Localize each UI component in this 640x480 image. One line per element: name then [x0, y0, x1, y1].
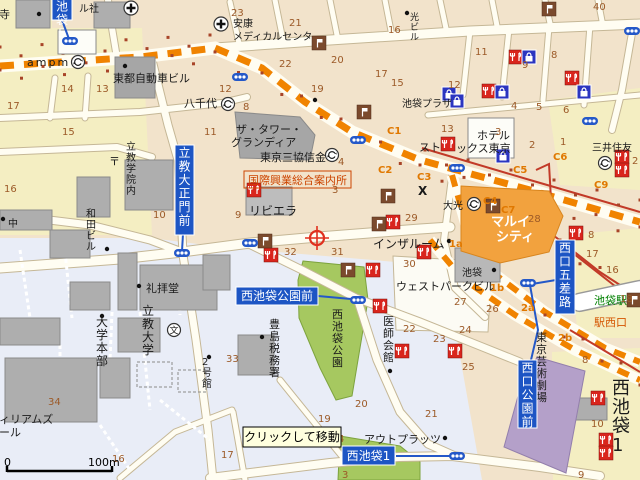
block-number: 31: [331, 247, 344, 258]
move-tooltip: クリックして移動: [243, 427, 341, 447]
boundary-dot: [41, 43, 44, 46]
block-number: 19: [311, 84, 324, 95]
bank-icon: [468, 198, 481, 211]
boundary-dot: [320, 116, 323, 119]
light-icon: [449, 452, 465, 460]
map-label: 八千代: [184, 97, 217, 110]
boundary-dot: [125, 38, 128, 41]
exit-label: 2a: [521, 303, 535, 314]
map-label: ホール: [0, 426, 21, 439]
intersection-sign: 西池袋1: [342, 446, 395, 465]
block-number: 24: [459, 325, 472, 336]
flag-icon: [381, 189, 395, 203]
boundary-dot: [0, 69, 2, 72]
block-number: 1: [560, 137, 566, 148]
block-number: 32: [284, 247, 297, 258]
map-viewport[interactable]: 文 寺ル社ampm東都自動車ビル八千代安康メディカルセンタ光ビル池袋プラザザ・タ…: [0, 0, 640, 480]
block-number: 3: [495, 127, 501, 138]
boundary-dot: [617, 229, 620, 232]
sign-text: 西池袋公園前: [241, 288, 313, 303]
block-number: 14: [61, 84, 74, 95]
block-number: 21: [425, 409, 438, 420]
restaurant-icon: [395, 344, 409, 358]
map-label: 東京芸術劇場: [536, 331, 547, 404]
exit-label: C2: [378, 165, 392, 176]
bank-icon: [599, 157, 612, 170]
restaurant-icon: [615, 163, 629, 177]
restaurant-icon: [591, 391, 605, 405]
block-number: 26: [486, 304, 499, 315]
block-number: 17: [375, 69, 388, 80]
map-label: リビエラ: [249, 204, 297, 218]
boundary-dot: [488, 174, 491, 177]
map-label: 立教大学: [142, 303, 154, 357]
boundary-dot: [579, 262, 582, 265]
light-icon: [624, 27, 640, 35]
map-label: ル社: [79, 2, 99, 15]
map-label: 中: [8, 217, 18, 230]
flag-icon: [372, 217, 386, 231]
flag-icon: [312, 36, 326, 50]
block-number: 28: [528, 214, 541, 225]
hospital-icon: [124, 1, 138, 15]
block-number: 2: [529, 140, 535, 151]
restaurant-icon: [366, 263, 380, 277]
exit-label: C9: [594, 180, 608, 191]
exit-label: 1b: [490, 283, 504, 294]
light-icon: [242, 239, 258, 247]
flag-icon: [341, 263, 355, 277]
flag-icon: [357, 105, 371, 119]
restaurant-icon: [441, 137, 455, 151]
dot-icon: [313, 98, 317, 102]
block-number: 12: [448, 80, 461, 91]
block-number: 9: [235, 210, 241, 221]
boundary-dot: [399, 162, 402, 165]
map-label: スト: [419, 141, 441, 154]
map-label: 池袋: [462, 266, 482, 279]
boundary-dot: [441, 180, 444, 183]
light-icon: [232, 73, 248, 81]
map-label: 大学本部: [96, 315, 108, 368]
map-label: アウトプラッツ: [364, 433, 441, 446]
block-number: 17: [7, 101, 20, 112]
boundary-dot: [553, 179, 556, 182]
sign-text: 西口公園前: [521, 361, 533, 429]
dot-icon: [492, 268, 496, 272]
boundary-dot: [188, 45, 191, 48]
map-label: インザルーム: [373, 237, 445, 251]
boundary-dot: [340, 118, 343, 121]
map-label: ウェストパークビル: [396, 280, 495, 293]
map-label: グランディア: [231, 135, 296, 149]
school-icon: 文: [168, 324, 181, 337]
boundary-dot: [104, 50, 107, 53]
block-number: 23: [433, 334, 446, 345]
restaurant-icon: [565, 71, 579, 85]
exit-label: C5: [513, 165, 527, 176]
intersection-sign: 西口五差路: [555, 240, 575, 314]
map-label: 寺: [0, 8, 10, 21]
boundary-dot: [601, 360, 604, 363]
svg-text:文: 文: [169, 325, 178, 337]
map-label: マルイ: [491, 215, 530, 230]
shopping-icon: [495, 85, 509, 99]
dot-icon: [105, 247, 109, 251]
map-label: ザ・タワー・: [236, 123, 302, 136]
block-number: 34: [48, 397, 61, 408]
boundary-dot: [280, 93, 283, 96]
map-label: 光ビル: [410, 11, 419, 43]
block-number: 16: [606, 265, 619, 276]
map-label: ホテル: [477, 129, 510, 142]
intersection-sign: 西口公園前: [518, 360, 537, 429]
restaurant-icon: [264, 248, 278, 262]
exit-label: C7: [501, 205, 515, 216]
bank-icon: [72, 56, 85, 69]
scale-end-label: 100m: [88, 456, 120, 469]
dot-icon: [388, 369, 392, 373]
light-icon: [520, 279, 536, 287]
light-icon: [174, 249, 190, 257]
block-number: 25: [462, 362, 475, 373]
map-label: 東京三協信金: [260, 150, 326, 164]
boundary-dot: [171, 54, 174, 57]
boundary-dot: [467, 159, 470, 162]
map-label: 池袋プラザ: [402, 97, 452, 110]
map-canvas[interactable]: 文 寺ル社ampm東都自動車ビル八千代安康メディカルセンタ光ビル池袋プラザザ・タ…: [0, 0, 640, 480]
boundary-dot: [146, 47, 149, 50]
boundary-dot: [20, 54, 23, 57]
block-number: 11: [204, 127, 217, 138]
block-number: 20: [355, 399, 368, 410]
boundary-dot: [106, 70, 109, 73]
boundary-dot: [617, 204, 620, 207]
sign-text: 西池袋1: [347, 449, 391, 463]
block-number: 10: [591, 419, 604, 430]
map-label: 大光: [443, 199, 463, 212]
map-label: ampm: [27, 56, 70, 69]
block-number: 17: [221, 450, 234, 461]
block-number: 12: [219, 84, 232, 95]
block-number: 4: [511, 101, 517, 112]
block-number: 22: [279, 59, 292, 70]
bank-icon: [326, 149, 339, 162]
map-label: シティ: [496, 230, 534, 245]
block-number: 5: [536, 102, 542, 113]
block-number: 16: [4, 184, 17, 195]
block-number: 22: [403, 324, 416, 335]
block-number: 21: [289, 18, 302, 29]
restaurant-icon: [509, 50, 523, 64]
dot-icon: [123, 64, 127, 68]
boundary-dot: [167, 36, 170, 39]
intersection-sign: 立教大正門前: [175, 145, 194, 235]
block-number: 16: [388, 25, 401, 36]
boundary-dot: [445, 164, 448, 167]
bank-icon: [222, 98, 235, 111]
dot-icon: [37, 12, 41, 16]
map-label: 東都自動車ビル: [113, 71, 190, 85]
exit-label: 2b: [558, 333, 572, 344]
block-number: 4: [338, 157, 344, 168]
boundary-dot: [63, 73, 66, 76]
block-number: 29: [405, 213, 418, 224]
block-number: 20: [331, 55, 344, 66]
block-number: 19: [318, 414, 331, 425]
boundary-dot: [300, 95, 303, 98]
block-number: 9: [578, 470, 584, 480]
exit-label: C6: [553, 152, 567, 163]
boundary-dot: [463, 176, 466, 179]
block-number: 8: [588, 230, 594, 241]
boundary-dot: [379, 141, 382, 144]
intersection-sign: 西池袋公園前: [236, 287, 318, 305]
exit-label: C1: [387, 126, 401, 137]
map-label: ックス東京: [456, 141, 511, 155]
restaurant-icon: [482, 84, 496, 98]
block-number: 30: [403, 259, 416, 270]
boundary-dot: [531, 184, 534, 187]
exit-label: 1a: [449, 239, 463, 250]
block-number: 3: [342, 470, 348, 480]
block-number: 13: [96, 84, 109, 95]
boundary-dot: [574, 194, 577, 197]
block-number: 33: [226, 354, 239, 365]
block-number: 40: [593, 2, 606, 13]
shopping-icon: [577, 85, 591, 99]
scale-start-label: 0: [4, 456, 11, 469]
boundary-dot: [192, 62, 195, 65]
light-icon: [582, 117, 598, 125]
block-number: 8: [582, 355, 588, 366]
map-label: 礼拝堂: [146, 281, 179, 295]
block-number: 18: [620, 294, 633, 305]
map-label: メディカルセンタ: [233, 30, 312, 43]
restaurant-icon: [569, 226, 583, 240]
boundary-dot: [582, 338, 585, 341]
block-number: 2: [632, 156, 638, 167]
map-label: 三井住友: [592, 141, 632, 154]
restaurant-icon: [599, 433, 613, 447]
flag-icon: [258, 234, 272, 248]
boundary-dot: [620, 362, 623, 365]
restaurant-icon: [448, 344, 462, 358]
map-label: 西池袋公園: [332, 308, 343, 369]
dot-icon: [405, 11, 409, 15]
flag-icon: [542, 2, 556, 16]
block-number: 9: [522, 60, 528, 71]
block-number: 10: [153, 210, 166, 221]
exit-label: C4: [483, 196, 497, 207]
tooltip-text: クリックして移動: [244, 430, 340, 444]
light-icon: [449, 164, 465, 172]
boundary-dot: [0, 46, 2, 49]
block-number: 6: [563, 105, 569, 116]
map-label: 立教学院内: [126, 140, 136, 197]
hospital-icon: [214, 17, 228, 31]
boundary-dot: [599, 266, 602, 269]
boundary-dot: [20, 77, 23, 80]
exit-label: C3: [417, 172, 431, 183]
block-number: 13: [441, 124, 454, 135]
boundary-dot: [261, 72, 264, 75]
light-icon: [350, 136, 366, 144]
block-number: 8: [243, 102, 249, 113]
sign-text: 西口五差路: [559, 241, 571, 309]
block-number: 23: [231, 8, 244, 19]
restaurant-icon: [599, 446, 613, 460]
restaurant-icon: [373, 299, 387, 313]
map-label: 医師会館: [383, 315, 394, 364]
map-label: 豊島税務署: [269, 318, 280, 379]
map-label: X: [418, 184, 428, 198]
block-number: 11: [475, 47, 488, 58]
map-label: 和田ビル: [86, 208, 96, 253]
block-number: 15: [62, 127, 75, 138]
dot-icon: [137, 284, 141, 288]
boundary-dot: [419, 164, 422, 167]
dot-icon: [260, 335, 264, 339]
boundary-dot: [544, 314, 547, 317]
dot-icon: [1, 217, 5, 221]
block-number: 3: [332, 185, 338, 196]
block-number: 17: [586, 249, 599, 260]
boundary-dot: [573, 217, 576, 220]
shopping-icon: [450, 94, 464, 108]
block-number: 15: [391, 78, 404, 89]
light-icon: [350, 296, 366, 304]
dot-icon: [443, 436, 447, 440]
restaurant-icon: [386, 215, 400, 229]
block-number: 8: [551, 50, 557, 61]
block-number: 27: [454, 297, 467, 308]
map-label: 駅西口: [594, 316, 627, 329]
map-label: ウィリアムズ: [0, 412, 53, 426]
sign-text: 立教大正門前: [178, 145, 190, 228]
boundary-dot: [209, 34, 212, 37]
boundary-dot: [595, 213, 598, 216]
map-label: 〒: [109, 155, 120, 168]
boundary-dot: [214, 51, 217, 54]
